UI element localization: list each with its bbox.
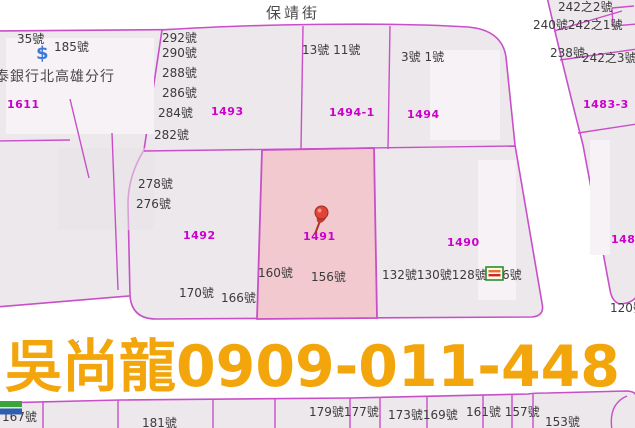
convenience-store-icon: [485, 266, 504, 281]
house-number-label: 156號: [311, 271, 346, 284]
house-number-label: 242之3號: [582, 52, 635, 65]
parcel-id-label: 1484: [611, 234, 635, 245]
house-number-label: 238號: [550, 47, 585, 60]
pushpin-marker-icon[interactable]: [308, 203, 334, 237]
house-number-label: 179號177號: [309, 406, 379, 419]
house-number-label: 3號 1號: [401, 51, 444, 64]
house-number-label: 292號: [162, 32, 197, 45]
house-number-label: 278號: [138, 178, 173, 191]
house-number-label: 242之2號: [558, 1, 613, 14]
house-number-label: 284號: [158, 107, 193, 120]
parcel-id-label: 1611: [7, 99, 40, 110]
house-number-label: 160號: [258, 267, 293, 280]
parcel-id-label: 1493: [211, 106, 244, 117]
house-number-label: 161號 157號: [466, 406, 540, 419]
house-number-label: 282號: [154, 129, 189, 142]
house-number-label: 240號242之1號: [533, 19, 622, 32]
house-number-label: 288號: [162, 67, 197, 80]
building-1483: [590, 140, 610, 255]
house-number-label: 173號169號: [388, 409, 458, 422]
house-number-label: 185號: [54, 41, 89, 54]
house-number-label: 35號: [17, 33, 44, 46]
parcel-id-label: 1494-1: [329, 107, 375, 118]
house-number-label: 276號: [136, 198, 171, 211]
cadastral-map-canvas[interactable]: 保靖街 $ 泰銀行北高雄分行 161114931494-114941483-31…: [0, 0, 635, 428]
house-number-label: 166號: [221, 292, 256, 305]
convenience-store-icon: [0, 401, 23, 415]
bank-name-label: 泰銀行北高雄分行: [0, 66, 115, 86]
street-name-label: 保靖街: [266, 2, 320, 23]
parcel-id-label: 1490: [447, 237, 480, 248]
house-number-label: 181號: [142, 417, 177, 428]
agent-watermark-text: 吳尚龍0909-011-448: [5, 339, 620, 396]
house-number-label: 286號: [162, 87, 197, 100]
parcel-id-label: 1483-3: [583, 99, 629, 110]
house-number-label: 153號: [545, 416, 580, 428]
house-number-label: 290號: [162, 47, 197, 60]
parcel-id-label: 1494: [407, 109, 440, 120]
house-number-label: 120號: [610, 302, 635, 315]
house-number-label: 13號 11號: [302, 44, 360, 57]
parcel-id-label: 1492: [183, 230, 216, 241]
house-number-label: 170號: [179, 287, 214, 300]
